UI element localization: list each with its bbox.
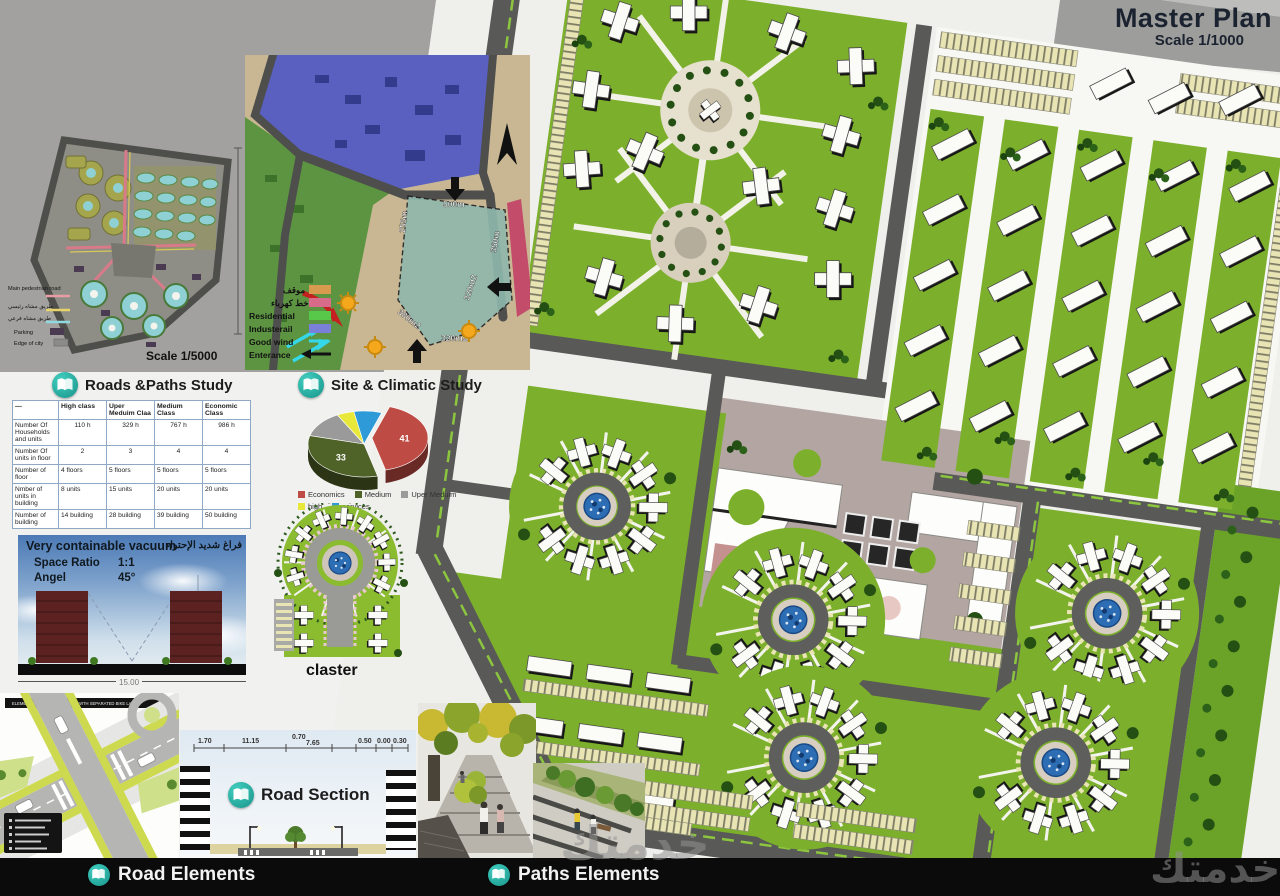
- watermark: خدمتك: [560, 816, 710, 870]
- road-section-panel: 1.70 11.15 0.70 7.65 0.50 0.00 0.30 Road…: [180, 730, 416, 858]
- dim-value: 0.70: [292, 734, 306, 741]
- svg-text:500m: 500m: [443, 199, 465, 209]
- site-climatic-study-title: Site & Climatic Study: [331, 377, 482, 394]
- table-row: Number Of Households and units 110 h 329…: [13, 420, 251, 446]
- cluster-label: claster: [306, 662, 358, 680]
- table-row: Number of building 14 building 28 buildi…: [13, 510, 251, 529]
- table-header: Medium Class: [155, 401, 203, 420]
- presentation-board: Master Plan Scale 1/1000: [0, 0, 1280, 896]
- svg-text:Residential: Residential: [249, 311, 295, 321]
- book-icon: [228, 782, 254, 808]
- table-header: Economic Class: [203, 401, 251, 420]
- paths-photo-1: [418, 703, 536, 858]
- book-icon: [52, 372, 78, 398]
- vacuum-width-value: 15.00: [116, 678, 142, 687]
- roads-paths-study-header: Roads &Paths Study: [52, 372, 233, 398]
- road-elements-item: Road Elements: [88, 864, 255, 886]
- dim-value: 0.50: [358, 738, 372, 745]
- master-plan-title-block: Master Plan Scale 1/1000: [1012, 4, 1272, 49]
- svg-text:موقف: موقف: [283, 285, 305, 296]
- table-header: Uper Meduim Claa: [107, 401, 155, 420]
- road-section-title: Road Section: [261, 785, 370, 805]
- svg-text:41: 41: [399, 434, 409, 444]
- svg-text:Edge of city: Edge of city: [14, 341, 43, 347]
- book-icon: [488, 864, 510, 886]
- illustration-legend: [4, 813, 62, 853]
- svg-text:Good wind: Good wind: [249, 337, 293, 347]
- book-icon: [298, 372, 324, 398]
- climatic-map: 500m 255m 350m 380m2 320m2 320m2: [245, 55, 530, 370]
- site-climatic-study-header: Site & Climatic Study: [298, 372, 482, 398]
- density-pie-chart: 4133: [288, 398, 448, 490]
- svg-text:Main pedestrian road: Main pedestrian road: [8, 286, 61, 292]
- table-header: High class: [59, 401, 107, 420]
- pie-legend-item: Economics: [298, 490, 345, 499]
- svg-text:طريق مشاه فرعي: طريق مشاه فرعي: [8, 315, 52, 322]
- road-elements-illustration: ELEMENTS OF INTERSECTIONS WITH SEPARATED…: [0, 693, 179, 858]
- roads-paths-table: — High class Uper Meduim Claa Medium Cla…: [12, 400, 251, 529]
- dim-value: 0.00: [377, 738, 391, 745]
- dim-value: 7.65: [306, 740, 320, 747]
- cluster-detail-plan: [258, 503, 422, 663]
- svg-text:Enterance: Enterance: [249, 350, 291, 360]
- svg-text:Industerail: Industerail: [249, 324, 292, 334]
- street-bushes: [18, 653, 246, 667]
- site-plan-outline: [34, 140, 242, 350]
- road-elements-label: Road Elements: [118, 864, 255, 886]
- street-drawing: [180, 826, 416, 858]
- svg-text:33: 33: [336, 452, 346, 462]
- vacuum-study-panel: Very containable vacuum فراغ شديد الإحتو…: [18, 535, 246, 675]
- pie-legend-item: Medium: [355, 490, 392, 499]
- table-row: Number Of units in floor 2 3 4 4: [13, 446, 251, 465]
- table-row: Number of floor 4 floors 5 floors 5 floo…: [13, 465, 251, 484]
- table-row: Nmber of units in building 8 units 15 un…: [13, 484, 251, 510]
- watermark: خدمتك: [1150, 846, 1280, 892]
- site-plan-scale: Scale 1/5000: [146, 349, 218, 363]
- dim-value: 11.15: [242, 738, 259, 745]
- pie-legend-item: Uper Meduim: [401, 490, 456, 499]
- dim-value: 0.30: [393, 738, 407, 745]
- roads-paths-study-title: Roads &Paths Study: [85, 377, 233, 394]
- svg-text:Parking: Parking: [14, 330, 33, 336]
- dim-value: 1.70: [198, 738, 212, 745]
- road-section-header: Road Section: [228, 782, 370, 808]
- table-header: —: [13, 401, 59, 420]
- page-title: Master Plan: [1012, 4, 1272, 32]
- book-icon: [88, 864, 110, 886]
- svg-text:خط كهرباء: خط كهرباء: [271, 298, 309, 309]
- site-plan-small: Main pedestrian road طريق مشاه رئيسي طري…: [6, 128, 250, 368]
- page-scale: Scale 1/1000: [1012, 32, 1244, 49]
